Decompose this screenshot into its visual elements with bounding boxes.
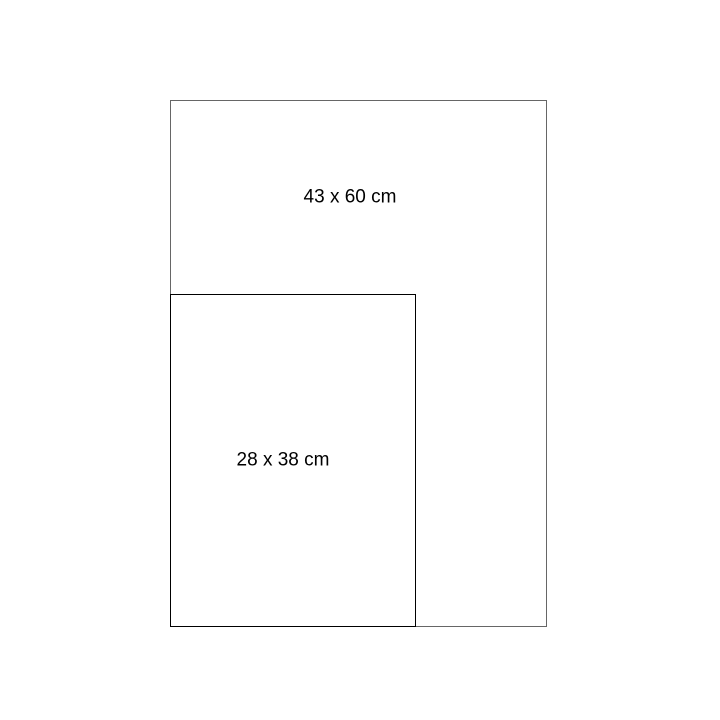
inner-rectangle-label: 28 x 38 cm — [237, 450, 330, 473]
outer-rectangle-label: 43 x 60 cm — [304, 187, 397, 210]
diagram-canvas: 43 x 60 cm 28 x 38 cm — [0, 0, 720, 720]
